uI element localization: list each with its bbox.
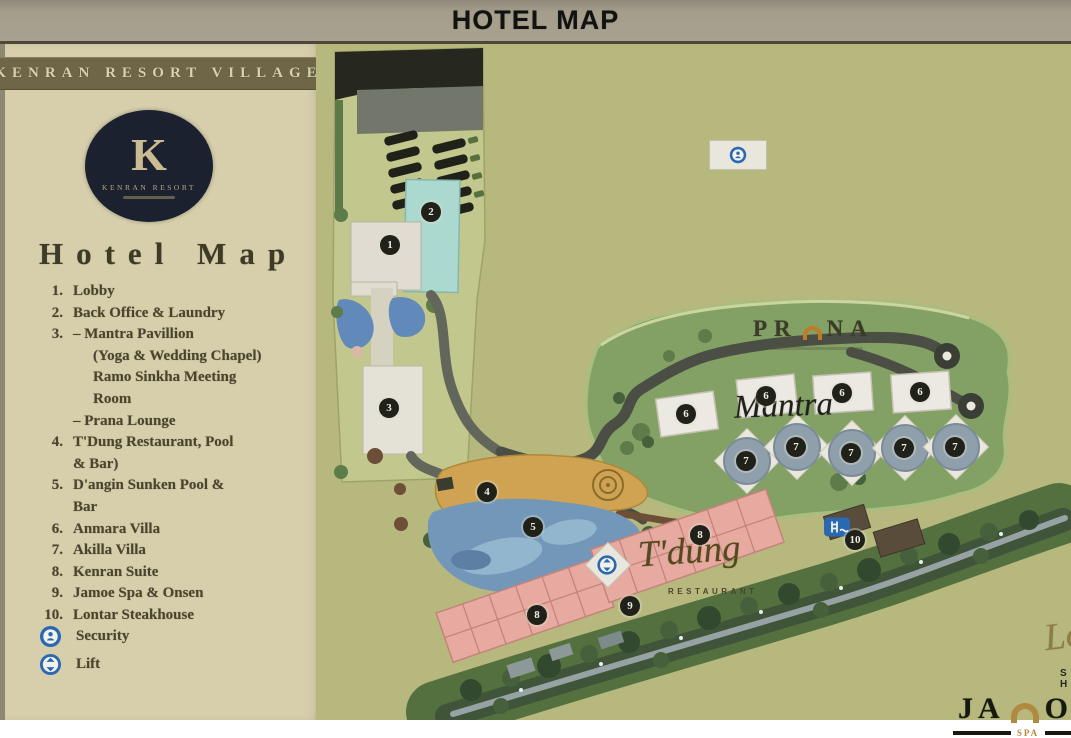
map-marker-5: 5 — [523, 517, 543, 537]
lontar-sublabel: STEAK HOUSE — [1060, 668, 1071, 690]
list-item: & Bar) — [35, 454, 313, 476]
map-marker-6: 6 — [832, 383, 852, 403]
tdung-sublabel: RESTAURANT — [668, 587, 758, 596]
list-item: – Prana Lounge — [35, 411, 313, 433]
prana-arch-icon — [803, 326, 822, 340]
list-item: 7.Akilla Villa — [35, 540, 313, 562]
logo-monogram: K — [131, 133, 167, 177]
sidebar: KENRAN RESORT VILLAGE K KENRAN RESORT Ho… — [0, 44, 321, 720]
map-marker-8: 8 — [527, 605, 547, 625]
list-item: Ramo Sinkha Meeting — [35, 367, 313, 389]
map-marker-4: 4 — [477, 482, 497, 502]
page-header: HOTEL MAP — [0, 0, 1071, 44]
map-marker-2: 2 — [421, 202, 441, 222]
lift-station — [597, 555, 618, 576]
legend-lift: Lift — [39, 650, 129, 678]
lift-icon — [39, 653, 62, 676]
list-item: Bar — [35, 497, 313, 519]
map-marker-6: 6 — [676, 404, 696, 424]
security-icon — [729, 146, 747, 164]
hotel-map-page: HOTEL MAP KENRAN RESORT VILLAGE K KENRAN… — [0, 0, 1071, 720]
jamoe-label: JA OE SPA — [940, 692, 1071, 738]
map-marker-7: 7 — [841, 443, 861, 463]
logo-divider — [123, 196, 175, 199]
resort-logo: K KENRAN RESORT — [85, 110, 213, 222]
map-marker-1: 1 — [380, 235, 400, 255]
map-marker-6: 6 — [756, 386, 776, 406]
legend: Security Lift — [39, 622, 129, 678]
map-marker-7: 7 — [945, 437, 965, 457]
list-item: (Yoga & Wedding Chapel) — [35, 346, 313, 368]
jamoe-rule-right — [1045, 731, 1071, 735]
list-item: 8.Kenran Suite — [35, 562, 313, 584]
list-item: 9.Jamoe Spa & Onsen — [35, 583, 313, 605]
list-item: 6.Anmara Villa — [35, 519, 313, 541]
jamoe-arch-icon — [1011, 703, 1039, 723]
list-item: 2.Back Office & Laundry — [35, 303, 313, 325]
map-marker-7: 7 — [786, 437, 806, 457]
list-item: Room — [35, 389, 313, 411]
map-marker-7: 7 — [894, 438, 914, 458]
logo-name: KENRAN RESORT — [102, 183, 196, 192]
lift-icon — [597, 555, 618, 576]
sidebar-heading: Hotel Map — [39, 236, 289, 272]
list-item: 5.D'angin Sunken Pool & — [35, 475, 313, 497]
legend-security: Security — [39, 622, 129, 650]
brand-name: KENRAN RESORT VILLAGE — [0, 65, 323, 82]
map-marker-10: 10 — [845, 530, 865, 550]
legend-label: Security — [76, 628, 129, 645]
jamoe-rule-left — [953, 731, 1011, 735]
mantra-label: Mantra — [733, 386, 833, 426]
map-marker-7: 7 — [736, 451, 756, 471]
map-marker-3: 3 — [379, 398, 399, 418]
list-item: 3.– Mantra Pavillion — [35, 324, 313, 346]
legend-label: Lift — [76, 656, 100, 673]
prana-label: PRNA — [753, 316, 874, 342]
list-item: 1.Lobby — [35, 281, 313, 303]
location-list: 1.Lobby 2.Back Office & Laundry 3.– Mant… — [35, 281, 313, 627]
security-station — [709, 140, 767, 170]
map-marker-9: 9 — [620, 596, 640, 616]
list-item: 4.T'Dung Restaurant, Pool — [35, 432, 313, 454]
security-icon — [39, 625, 62, 648]
map-marker-6: 6 — [910, 382, 930, 402]
resort-map-illustration — [316, 44, 1071, 720]
resort-map: PRNA Mantra T'dung RESTAURANT Lontar STE… — [316, 44, 1071, 720]
prana-subtext — [771, 347, 863, 350]
map-marker-8: 8 — [690, 525, 710, 545]
page-title: HOTEL MAP — [452, 5, 620, 36]
brand-bar: KENRAN RESORT VILLAGE — [0, 57, 317, 90]
